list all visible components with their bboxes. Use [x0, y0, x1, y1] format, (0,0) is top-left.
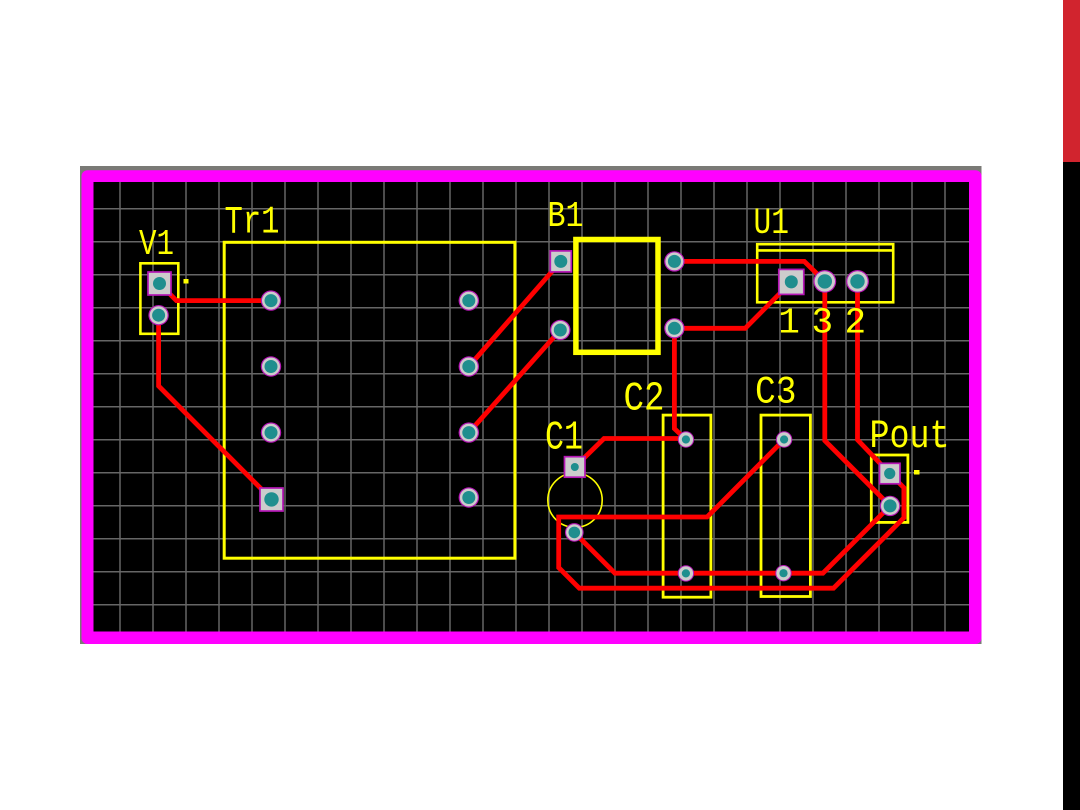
- svg-text:2: 2: [844, 302, 866, 343]
- svg-text:1: 1: [778, 302, 800, 343]
- svg-text:C2: C2: [624, 377, 665, 423]
- svg-text:Tr1: Tr1: [225, 200, 280, 244]
- svg-text:C1: C1: [545, 416, 583, 462]
- svg-text:3: 3: [811, 302, 833, 343]
- svg-text:V1: V1: [139, 224, 174, 265]
- svg-text:Pout: Pout: [870, 415, 950, 460]
- svg-text:C3: C3: [755, 370, 797, 414]
- svg-text:B1: B1: [548, 196, 584, 237]
- svg-text:U1: U1: [754, 203, 790, 245]
